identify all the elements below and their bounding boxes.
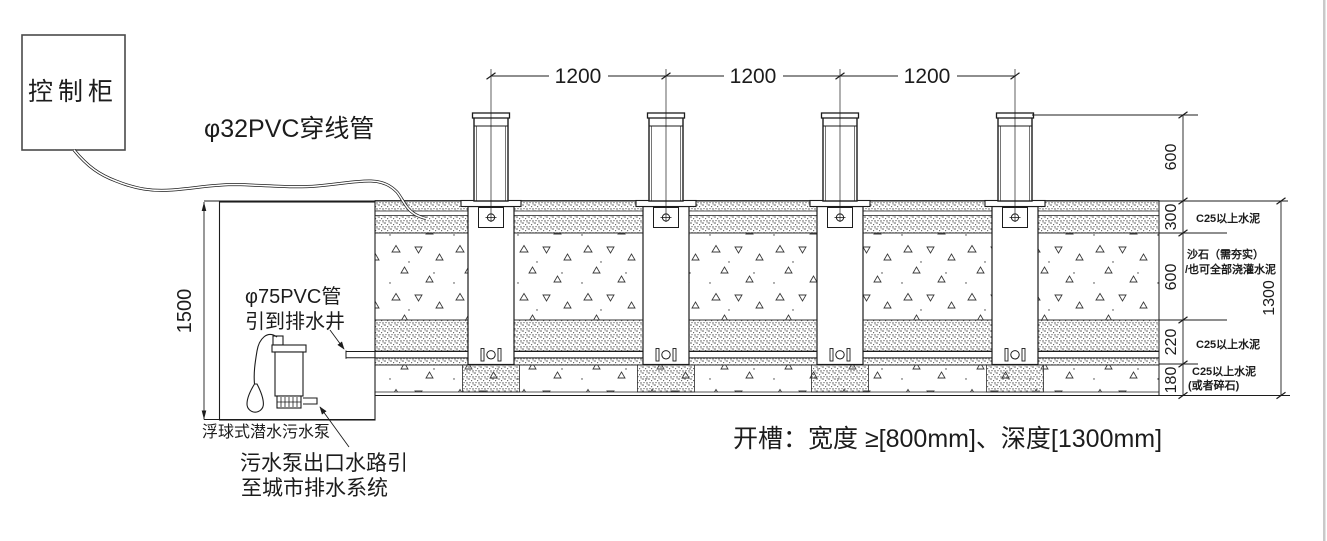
bollard-center-lines (491, 69, 1015, 222)
bollard-2-casing (643, 207, 689, 365)
bollard-2-pipe-joint (662, 351, 670, 359)
dim-spacing-3: 1200 (904, 65, 951, 88)
material-layer4-line1: C25以上水泥 (1192, 364, 1256, 378)
bollard-4-casing (992, 207, 1038, 365)
dim-layer1: 300 (1163, 204, 1180, 231)
pump-outlet-label-line1: 污水泵出口水路引 (240, 452, 408, 475)
conduit-label: φ32PVC穿线管 (204, 115, 374, 143)
dim-bollard-height: 600 (1163, 144, 1180, 171)
drain-pipe-label-line2: 引到排水井 (245, 310, 345, 333)
bollard-3-pipe-joint (836, 351, 844, 359)
material-layer2-line2: /也可全部浇灌水泥 (1185, 262, 1276, 276)
pump-top-cap (272, 345, 306, 352)
material-layer2-line1: 沙石（需夯实） (1187, 247, 1264, 261)
spacing-dimension: 1200 1200 1200 (487, 64, 1020, 88)
pump-body (275, 352, 303, 396)
dim-layer2: 600 (1163, 264, 1180, 291)
material-layer1: C25以上水泥 (1196, 211, 1260, 225)
trench-note: 开槽：宽度 ≥[800mm]、深度[1300mm] (733, 425, 1162, 453)
control-cabinet-label: 控制柜 (28, 78, 118, 106)
material-layer4-line2: (或者碎石) (1188, 378, 1240, 392)
material-layer3: C25以上水泥 (1196, 337, 1260, 351)
right-edge-strip (1323, 0, 1326, 541)
dim-spacing-2: 1200 (730, 65, 777, 88)
dim-pit-depth: 1500 (174, 289, 196, 334)
pump-outlet-label-line2: 至城市排水系统 (241, 477, 388, 500)
pump-outlet-elbow (273, 336, 283, 345)
bollard-1-pipe-joint (487, 351, 495, 359)
dim-layer3: 220 (1163, 329, 1180, 356)
bollard-3-casing (817, 207, 863, 365)
bollard-4-pipe-joint (1011, 351, 1019, 359)
drain-pipe-label-line1: φ75PVC管 (245, 285, 341, 308)
dim-layer4: 180 (1163, 367, 1180, 394)
dim-trench-depth: 1300 (1261, 280, 1278, 316)
bollard-1-casing (468, 207, 514, 365)
dim-spacing-1: 1200 (555, 65, 602, 88)
drawing-svg: 1200 1200 1200 600 300 600 220 180 1300 … (0, 0, 1327, 541)
cad-installation-drawing: 1200 1200 1200 600 300 600 220 180 1300 … (0, 0, 1327, 541)
pump-label: 浮球式潜水污水泵 (202, 423, 330, 441)
